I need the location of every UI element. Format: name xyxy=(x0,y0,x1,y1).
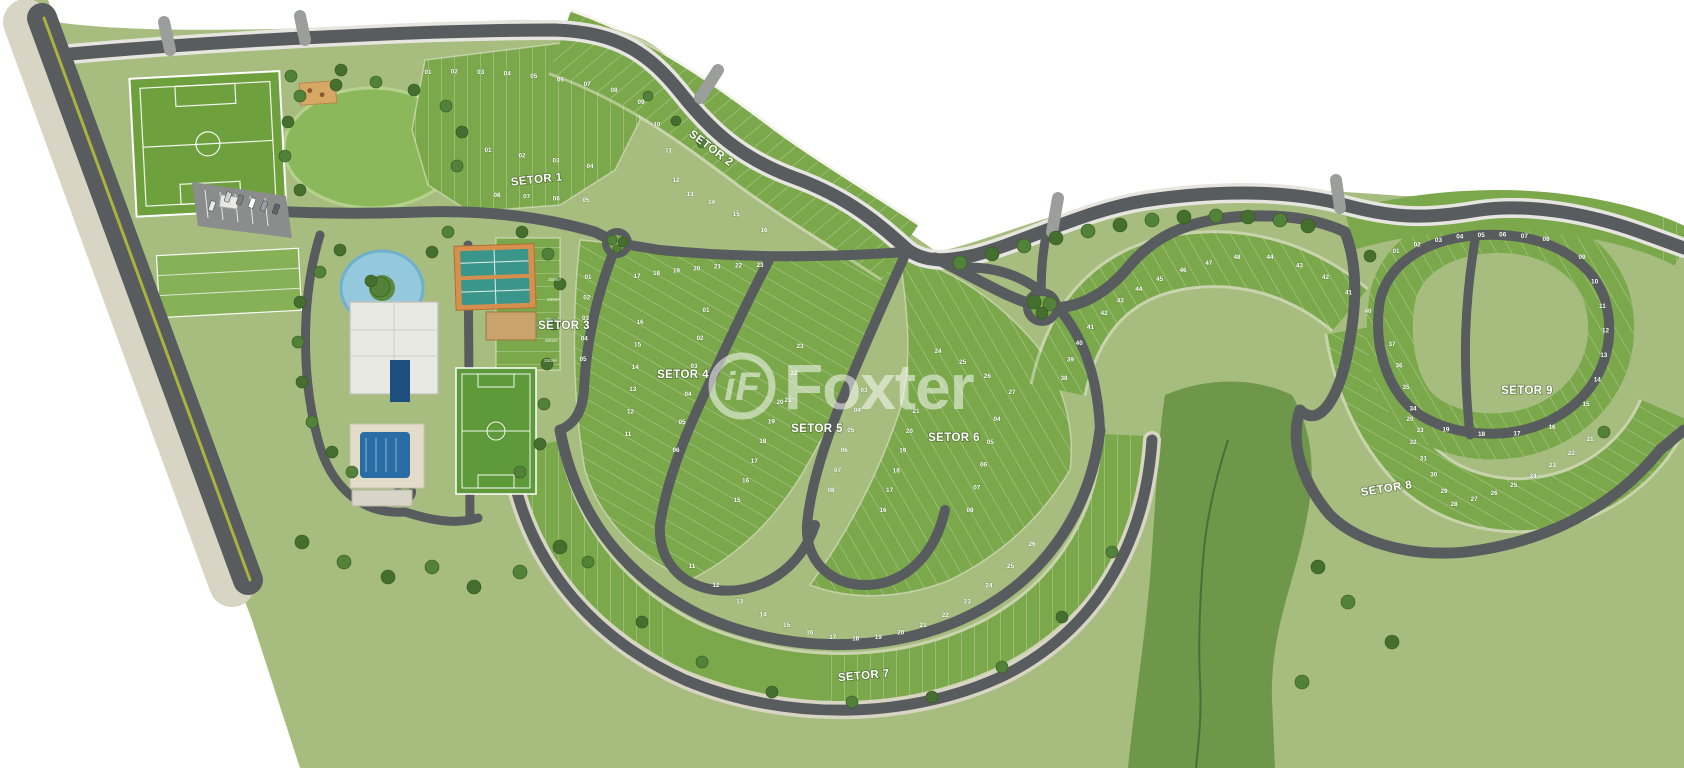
tree xyxy=(365,275,377,287)
lot-number: 36 xyxy=(1395,363,1403,370)
tree xyxy=(370,76,382,88)
tree xyxy=(426,246,438,258)
lot-number: 17 xyxy=(829,634,837,641)
foxter-icon-glyph: iF xyxy=(724,365,761,409)
lot-number: 22 xyxy=(1568,450,1576,457)
lot-number: 33 xyxy=(1416,427,1424,434)
tree xyxy=(282,116,294,128)
tree xyxy=(1273,213,1287,227)
tree xyxy=(513,565,527,579)
tree xyxy=(1177,210,1191,224)
tree xyxy=(442,226,454,238)
tree xyxy=(607,235,617,245)
tree xyxy=(294,296,306,308)
lot-number: 18 xyxy=(893,467,901,474)
tree xyxy=(1036,307,1048,319)
lot-number: 05 xyxy=(530,73,538,80)
lot-number: 16 xyxy=(879,507,887,514)
tree xyxy=(425,560,439,574)
lap-pool xyxy=(390,360,410,402)
lot-number: 23 xyxy=(796,343,804,350)
lot-number: 16 xyxy=(1548,424,1556,431)
lot-number: 04 xyxy=(581,336,589,343)
lot-number: 47 xyxy=(1205,260,1213,267)
lot-number: 21 xyxy=(1586,436,1594,443)
lot-number: 20 xyxy=(1406,416,1414,423)
lot-number: 15 xyxy=(733,497,741,504)
lot-number: 43 xyxy=(1296,262,1304,269)
lot-number: 35 xyxy=(1402,384,1410,391)
lot-number: 08 xyxy=(966,507,974,514)
tennis-court xyxy=(454,244,536,311)
lot-number: 13 xyxy=(1600,352,1608,359)
lot-number: 14 xyxy=(708,199,716,206)
tree xyxy=(636,616,648,628)
tree xyxy=(953,256,967,270)
tree xyxy=(926,691,938,703)
lot-number: 11 xyxy=(625,431,632,438)
lot-number: 08 xyxy=(1542,236,1550,243)
lot-number: 06 xyxy=(1499,232,1507,239)
lot-number: 03 xyxy=(552,158,560,165)
lot-number: 09 xyxy=(1578,254,1586,261)
tree xyxy=(334,244,346,256)
lot-number: 04 xyxy=(1456,234,1464,241)
lot-number: 05 xyxy=(987,439,995,446)
lot-number: 14 xyxy=(1594,376,1602,383)
tree xyxy=(1113,218,1127,232)
lot-number: 41 xyxy=(1345,289,1353,296)
tree xyxy=(295,535,309,549)
lot-number: 02 xyxy=(583,295,591,302)
lot-number: 11 xyxy=(689,563,696,570)
tree xyxy=(1027,295,1041,309)
tree xyxy=(671,116,681,126)
tree xyxy=(613,245,621,253)
lot-number: 05 xyxy=(579,356,587,363)
lot-number: 26 xyxy=(984,373,992,380)
tree xyxy=(618,237,628,247)
lot-number: 07 xyxy=(834,467,842,474)
tree xyxy=(1056,611,1068,623)
lot-number: 01 xyxy=(584,274,592,281)
tree xyxy=(1209,209,1223,223)
sector-label-setor-6: SETOR 6 xyxy=(928,432,980,444)
lot-number: 10 xyxy=(1591,278,1599,285)
tree xyxy=(451,160,463,172)
tree xyxy=(381,570,395,584)
lot-number: 11 xyxy=(1599,303,1606,310)
lot-number: 15 xyxy=(1582,401,1590,408)
lot-number: 30 xyxy=(1430,472,1438,479)
lot-number: 23 xyxy=(756,262,764,269)
lot-area-label: 250m² xyxy=(547,297,560,302)
lot-number: 44 xyxy=(1135,286,1143,293)
lot-number: 16 xyxy=(806,629,814,636)
lot-number: 07 xyxy=(973,484,981,491)
lot-number: 03 xyxy=(477,69,485,76)
lot-number: 08 xyxy=(827,487,835,494)
lot-number: 43 xyxy=(1117,297,1125,304)
lot-number: 12 xyxy=(1602,327,1610,334)
lot-number: 20 xyxy=(906,428,914,435)
lot-number: 07 xyxy=(523,194,531,201)
tree xyxy=(1241,210,1255,224)
lot-number: 13 xyxy=(686,191,694,198)
lot-number: 18 xyxy=(653,270,661,277)
tree xyxy=(326,446,338,458)
lot-number: 27 xyxy=(1471,496,1479,503)
tree xyxy=(314,266,326,278)
tree xyxy=(296,376,308,388)
lot-number: 16 xyxy=(742,477,750,484)
lot-area-label: 250m² xyxy=(545,338,558,343)
lot-number: 15 xyxy=(783,622,791,629)
lot-number: 05 xyxy=(678,419,686,426)
tree xyxy=(766,686,778,698)
lot-number: 34 xyxy=(1409,406,1417,413)
lot-number: 18 xyxy=(759,438,767,445)
sector-label-setor-4: SETOR 4 xyxy=(657,369,709,381)
lot-number: 01 xyxy=(424,69,432,76)
tree xyxy=(408,84,420,96)
lot-number: 25 xyxy=(1007,563,1015,570)
lot-number: 14 xyxy=(632,364,640,371)
tree xyxy=(346,466,358,478)
lot-number: 07 xyxy=(1521,233,1529,240)
tree xyxy=(1106,546,1118,558)
lot-number: 29 xyxy=(1440,488,1448,495)
lot-number: 27 xyxy=(1008,389,1016,396)
lot-number: 20 xyxy=(776,399,784,406)
lot-number: 06 xyxy=(841,447,849,454)
tree xyxy=(467,580,481,594)
tree xyxy=(538,398,550,410)
tree xyxy=(553,540,567,554)
tree xyxy=(1145,213,1159,227)
tree xyxy=(985,247,999,261)
lot-number: 18 xyxy=(852,635,860,642)
tree xyxy=(294,184,306,196)
lot-number: 19 xyxy=(673,267,681,274)
lot-number: 48 xyxy=(1233,254,1241,261)
tree xyxy=(306,416,318,428)
lot-number: 42 xyxy=(1101,310,1109,317)
swimming-pool xyxy=(360,432,410,478)
lot-number: 06 xyxy=(553,195,561,202)
lot-number: 06 xyxy=(672,447,680,454)
lot-number: 17 xyxy=(633,273,641,280)
tree xyxy=(1341,595,1355,609)
lot-number: 17 xyxy=(886,487,894,494)
tree xyxy=(1301,219,1315,233)
lot-number: 01 xyxy=(484,147,492,154)
lot-number: 38 xyxy=(1060,375,1068,382)
tree xyxy=(285,70,297,82)
lot-number: 45 xyxy=(1156,276,1164,283)
lot-number: 04 xyxy=(993,416,1001,423)
lot-number: 24 xyxy=(985,582,993,589)
lot-number: 31 xyxy=(1420,455,1428,462)
lot-number: 15 xyxy=(634,341,642,348)
lot-number: 09 xyxy=(637,99,645,106)
lot-number: 17 xyxy=(1513,430,1521,437)
lot-number: 02 xyxy=(518,152,526,159)
tree xyxy=(1081,224,1095,238)
lot-number: 22 xyxy=(942,612,950,619)
lot-number: 32 xyxy=(1409,439,1417,446)
lot-area-label: 250m² xyxy=(548,277,561,282)
sector-label-setor-5: SETOR 5 xyxy=(791,423,843,435)
lot-number: 19 xyxy=(1442,426,1450,433)
lot-number: 26 xyxy=(1491,490,1499,497)
lot-number: 12 xyxy=(672,177,680,184)
lot-number: 06 xyxy=(557,77,565,84)
lot-number: 21 xyxy=(714,264,722,271)
tree xyxy=(1598,426,1610,438)
tree xyxy=(1295,675,1309,689)
lot-number: 39 xyxy=(1067,357,1075,364)
lot-number: 16 xyxy=(760,227,768,234)
lot-area-label: 250m² xyxy=(544,358,557,363)
lot-number: 02 xyxy=(1414,242,1422,249)
watermark-brand-text: Foxter xyxy=(784,351,974,423)
lot-number: 15 xyxy=(733,211,741,218)
tree xyxy=(542,248,554,260)
lot-number: 05 xyxy=(1478,232,1486,239)
lot-number: 05 xyxy=(582,197,590,204)
tree xyxy=(1311,560,1325,574)
lot-number: 23 xyxy=(964,599,972,606)
tree xyxy=(440,100,452,112)
lot-number: 04 xyxy=(684,391,692,398)
tree xyxy=(534,438,546,450)
tree xyxy=(294,90,306,102)
tree xyxy=(1017,239,1031,253)
tree xyxy=(582,556,594,568)
site-plan-map: 250m²250m²250m²250m²250m² 01020304080706… xyxy=(0,0,1684,768)
master-plan-svg: 250m²250m²250m²250m²250m² 01020304080706… xyxy=(0,0,1684,768)
tree xyxy=(292,336,304,348)
tree xyxy=(516,226,528,238)
lot-number: 28 xyxy=(1450,501,1458,508)
tree xyxy=(696,656,708,668)
sector-label-setor-9: SETOR 9 xyxy=(1501,385,1553,397)
lot-number: 12 xyxy=(627,409,635,416)
lot-number: 44 xyxy=(1266,254,1274,261)
lot-number: 23 xyxy=(1549,462,1557,469)
lot-number: 17 xyxy=(751,458,759,465)
lot-number: 37 xyxy=(1388,341,1396,348)
tree xyxy=(456,126,468,138)
tree xyxy=(846,696,858,708)
lot-number: 19 xyxy=(875,634,883,641)
tree xyxy=(1364,250,1376,262)
lot-number: 19 xyxy=(768,419,776,426)
lot-number: 20 xyxy=(897,629,905,636)
lot-number: 46 xyxy=(1179,267,1187,274)
lot-number: 05 xyxy=(847,427,855,434)
lot-number: 08 xyxy=(610,87,618,94)
lot-number: 11 xyxy=(665,147,672,154)
sector-label-setor-3: SETOR 3 xyxy=(538,320,590,332)
lot-number: 40 xyxy=(1364,308,1372,315)
lot-number: 25 xyxy=(1510,482,1518,489)
tree xyxy=(279,150,291,162)
lot-number: 02 xyxy=(696,335,704,342)
tree xyxy=(1385,635,1399,649)
lot-number: 02 xyxy=(451,68,459,75)
lot-number: 13 xyxy=(629,386,637,393)
lot-number: 12 xyxy=(712,582,720,589)
lot-number: 24 xyxy=(1530,473,1538,480)
lot-number: 08 xyxy=(493,192,501,199)
lot-number: 04 xyxy=(586,163,594,170)
tree xyxy=(514,466,526,478)
lot-number: 04 xyxy=(504,70,512,77)
lot-number: 14 xyxy=(760,612,768,619)
sports-pavilion xyxy=(486,312,536,340)
lot-number: 41 xyxy=(1087,324,1095,331)
tree xyxy=(996,661,1008,673)
lot-number: 40 xyxy=(1076,340,1084,347)
lot-number: 20 xyxy=(693,265,701,272)
tree xyxy=(335,64,347,76)
lot-number: 22 xyxy=(735,263,743,270)
tree xyxy=(330,79,342,91)
lot-number: 10 xyxy=(653,121,661,128)
lot-number: 21 xyxy=(920,622,928,629)
lot-number: 26 xyxy=(1028,541,1036,548)
clubhouse xyxy=(350,302,438,402)
lot-number: 18 xyxy=(1478,431,1486,438)
lot-number: 16 xyxy=(636,319,644,326)
tree xyxy=(337,555,351,569)
lot-number: 03 xyxy=(1435,237,1443,244)
practice-field xyxy=(156,248,301,317)
lot-number: 13 xyxy=(736,598,744,605)
lot-number: 07 xyxy=(584,81,592,88)
lot-number: 01 xyxy=(1392,248,1400,255)
lot-number: 06 xyxy=(980,462,988,469)
lot-number: 01 xyxy=(702,307,710,314)
lot-number: 19 xyxy=(899,448,907,455)
lot-number: 42 xyxy=(1322,274,1330,281)
tree xyxy=(1049,231,1063,245)
